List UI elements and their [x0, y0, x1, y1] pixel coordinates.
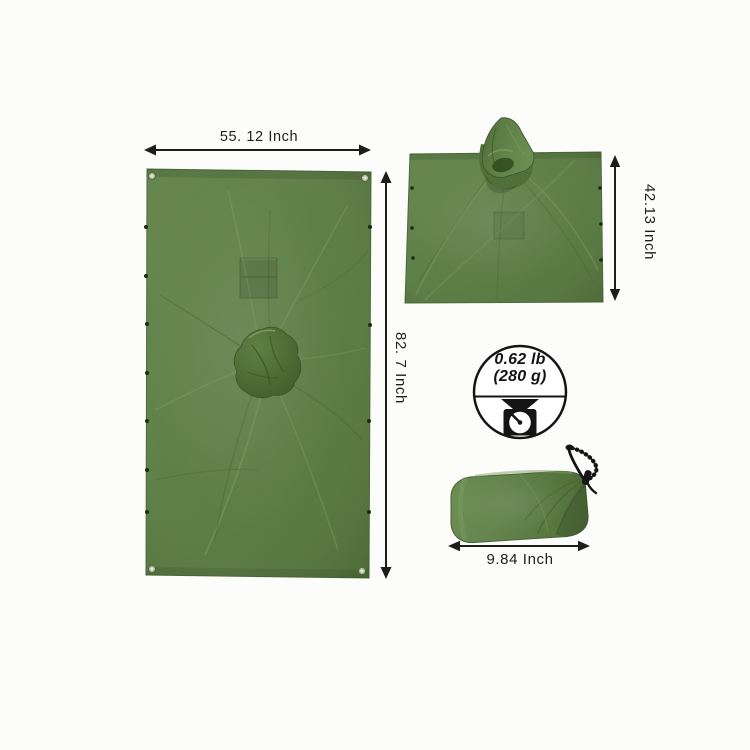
weight-grams: (280 g)	[453, 369, 587, 386]
illustration-canvas	[0, 0, 750, 750]
product-dimensions-diagram: 55. 12 Inch 82. 7 Inch 42.13 Inch 9.84 I…	[0, 0, 750, 750]
tarp-width-arrow	[144, 145, 371, 156]
stuff-sack-view	[451, 445, 597, 543]
poncho-pocket	[494, 212, 524, 239]
tarp-flat-view	[144, 169, 372, 578]
poncho-height-label: 42.13 Inch	[640, 162, 658, 282]
tarp-chest-pocket	[240, 258, 277, 298]
weight-pounds: 0.62 lb	[453, 352, 587, 369]
tarp-height-label: 82. 7 Inch	[391, 308, 409, 428]
tarp-height-arrow	[381, 171, 392, 579]
poncho-height-arrow	[610, 155, 620, 301]
poncho-view	[405, 118, 603, 303]
sack-length-label: 9.84 Inch	[455, 551, 585, 569]
weight-value: 0.62 lb (280 g)	[453, 352, 587, 385]
poncho-hood	[479, 118, 534, 194]
tarp-width-label: 55. 12 Inch	[147, 128, 371, 146]
